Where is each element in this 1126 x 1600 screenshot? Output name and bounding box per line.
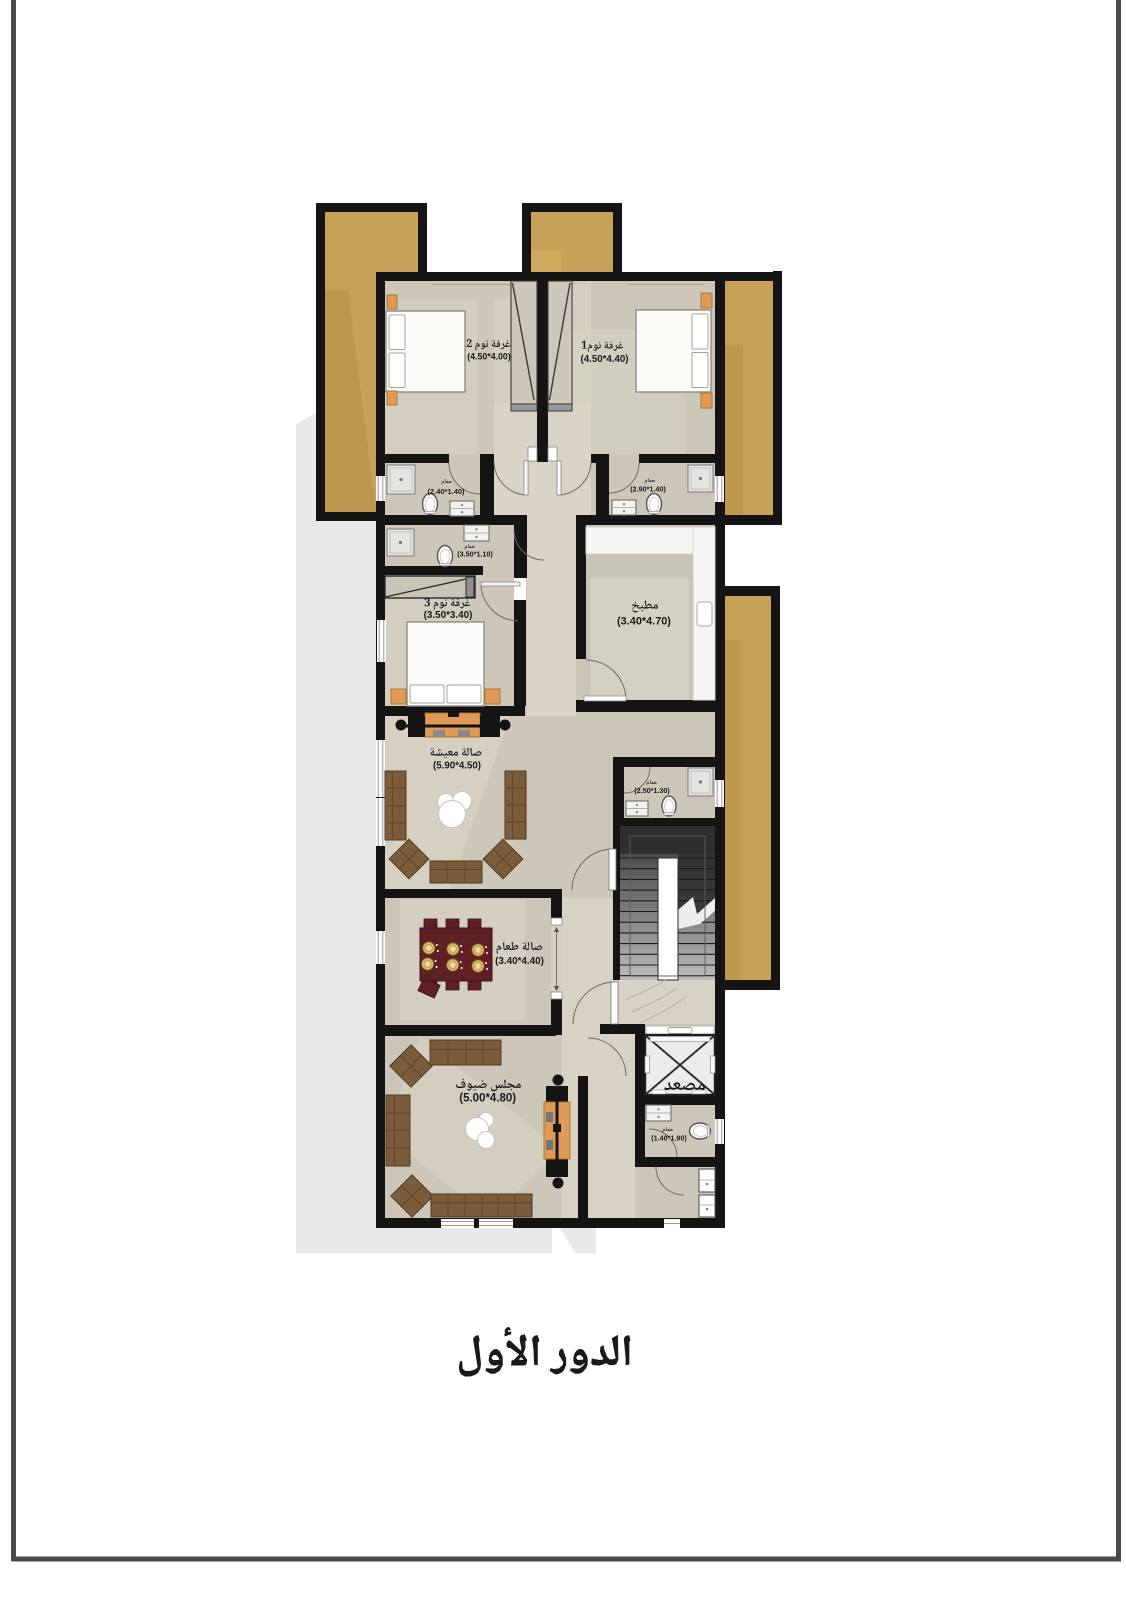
svg-text:(5.90*4.50): (5.90*4.50): [433, 761, 481, 772]
svg-text:(3.50*1.10): (3.50*1.10): [457, 549, 493, 558]
svg-text:(2.40*1.40): (2.40*1.40): [427, 487, 465, 496]
svg-text:(2.50*1.30): (2.50*1.30): [634, 786, 670, 795]
svg-text:(4.50*4.00): (4.50*4.00): [467, 351, 511, 361]
svg-text:(1.40*1.90): (1.40*1.90): [651, 1133, 687, 1142]
svg-text:(5.00*4.80): (5.00*4.80): [459, 1093, 516, 1105]
svg-text:(3.40*4.40): (3.40*4.40): [495, 956, 544, 967]
svg-text:(2.90*1.40): (2.90*1.40): [630, 484, 666, 493]
svg-text:(4.50*4.40): (4.50*4.40): [581, 354, 629, 365]
svg-text:(3.40*4.70): (3.40*4.70): [617, 615, 671, 627]
svg-text:(3.50*3.40): (3.50*3.40): [424, 610, 473, 621]
